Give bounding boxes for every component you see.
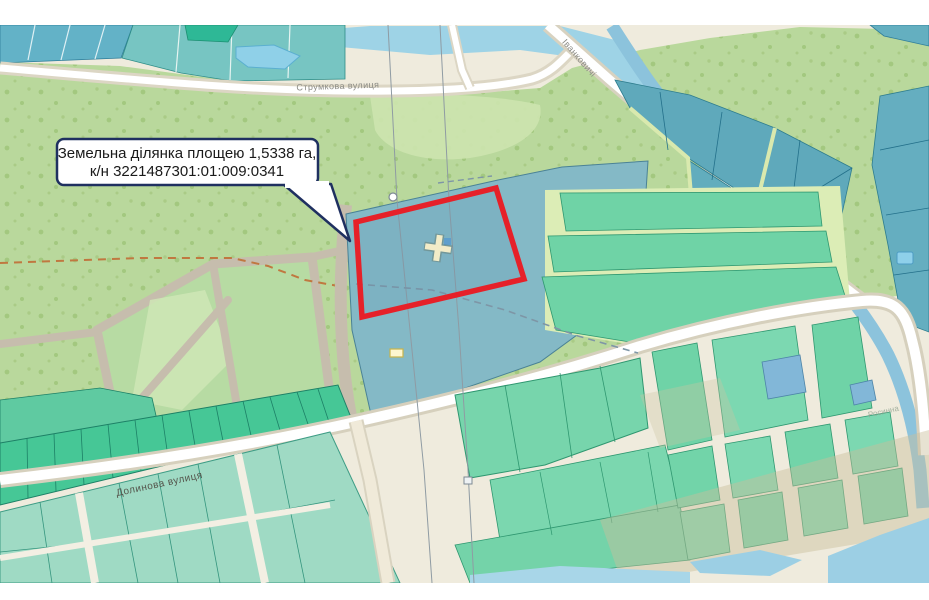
- line-node-circle: [389, 193, 397, 201]
- callout-line2: к/н 3221487301:01:009:0341: [90, 163, 284, 180]
- pond-right: [897, 252, 913, 264]
- cadastral-map[interactable]: Струмкова вулиця Долинова вулиця Іванков…: [0, 0, 929, 600]
- line-node-square: [464, 477, 472, 484]
- cadastral-map-page: Струмкова вулиця Долинова вулиця Іванков…: [0, 0, 929, 600]
- callout-line1: Земельна ділянка площею 1,5338 га,: [58, 145, 317, 162]
- callout-pointer-joint: [285, 181, 329, 188]
- minus-marker: [390, 349, 403, 357]
- map-canvas[interactable]: Струмкова вулиця Долинова вулиця Іванков…: [0, 25, 929, 583]
